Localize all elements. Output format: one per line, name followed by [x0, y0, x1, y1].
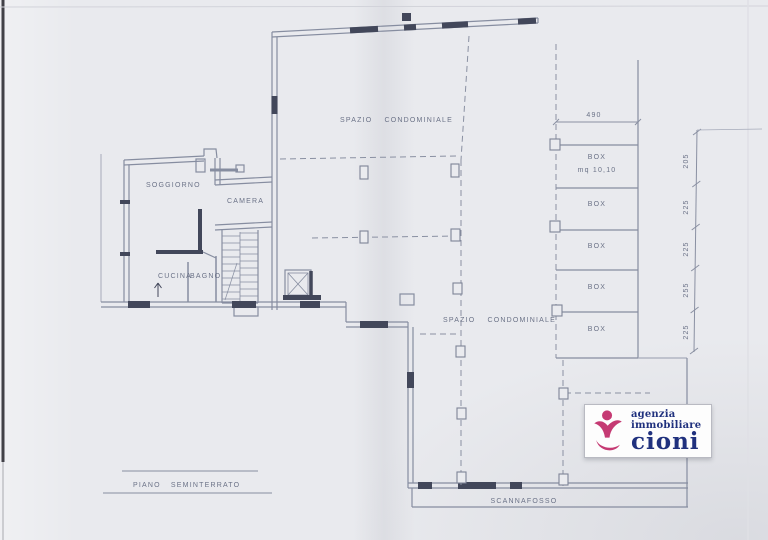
- box-area-1: mq 10,10: [578, 167, 617, 174]
- dimension-label-right-2: 225: [683, 199, 690, 214]
- solid-wall-marks: [120, 13, 536, 486]
- area-label-spazio-condominiale-lower: SPAZIO CONDOMINIALE: [443, 317, 556, 324]
- box-label-4: BOX: [588, 284, 606, 291]
- pillar-columns: [360, 139, 568, 485]
- room-label-camera: CAMERA: [227, 198, 264, 205]
- room-label-bagno: BAGNO: [190, 273, 221, 280]
- box-label-5: BOX: [588, 326, 606, 333]
- box-label-3: BOX: [588, 243, 606, 250]
- dimension-label-right-3: 225: [683, 241, 690, 256]
- scan-edge-artifacts: [0, 0, 768, 540]
- room-label-cucina: CUCINA: [158, 273, 192, 280]
- box-label-1: BOX: [588, 154, 606, 161]
- dimension-label-right-4: 255: [683, 282, 690, 297]
- floor-plan-drawing: SOGGIORNO CAMERA CUCINA BAGNO SPAZIO CON…: [0, 0, 768, 540]
- agency-logo: agenzia immobiliare cioni: [584, 404, 712, 458]
- room-label-soggiorno: SOGGIORNO: [146, 182, 201, 189]
- dimension-label-right-1: 205: [683, 153, 690, 168]
- logo-agency-name: cioni: [631, 430, 701, 454]
- logo-line1: agenzia: [631, 409, 701, 420]
- dimension-label-top-width: 490: [586, 112, 601, 119]
- logo-person-icon: [590, 409, 626, 453]
- scanned-floorplan-page: SOGGIORNO CAMERA CUCINA BAGNO SPAZIO CON…: [0, 0, 768, 540]
- area-label-spazio-condominiale-upper: SPAZIO CONDOMINIALE: [340, 117, 453, 124]
- dimension-label-right-5: 225: [683, 324, 690, 339]
- box-label-2: BOX: [588, 201, 606, 208]
- area-label-scannafosso: SCANNAFOSSO: [491, 498, 558, 505]
- dimension-lines: [553, 119, 762, 354]
- plan-title: PIANO SEMINTERRATO: [133, 482, 240, 489]
